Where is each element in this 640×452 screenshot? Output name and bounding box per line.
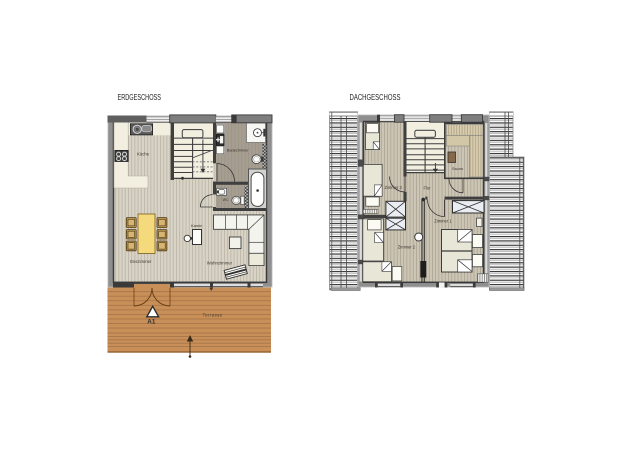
svg-text:A1: A1 [147,318,156,325]
svg-text:Zimmer 2: Zimmer 2 [398,244,416,249]
svg-text:Sauna: Sauna [452,167,464,171]
svg-text:ERDGESCHOSS: ERDGESCHOSS [118,93,162,102]
svg-text:Badezimmer: Badezimmer [227,147,250,152]
svg-text:DACHGESCHOSS: DACHGESCHOSS [350,93,401,102]
svg-text:Küche: Küche [137,152,150,157]
svg-text:Terrasse: Terrasse [203,313,223,318]
svg-text:Kamin: Kamin [191,223,202,228]
svg-text:Esszimmer: Esszimmer [130,259,152,264]
svg-text:Flur: Flur [424,186,432,191]
svg-text:WC: WC [223,198,229,202]
svg-text:Wohnzimmer: Wohnzimmer [207,260,233,265]
svg-text:Zimmer 1: Zimmer 1 [434,219,452,224]
